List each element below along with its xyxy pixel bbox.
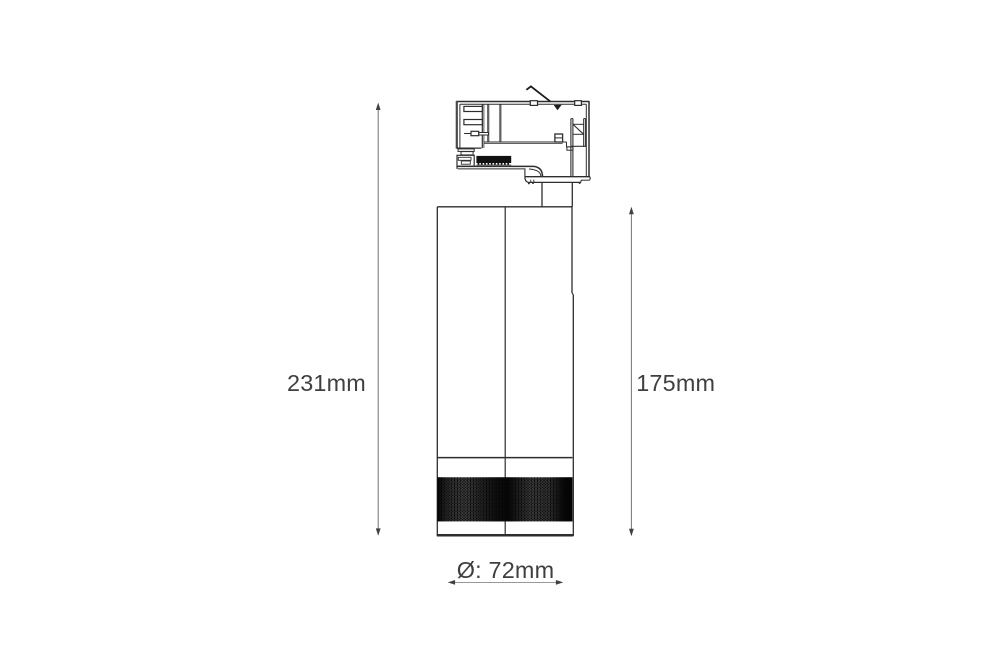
svg-text:231mm: 231mm [287,370,366,396]
svg-text:Ø: 72mm: Ø: 72mm [457,557,555,583]
svg-text:175mm: 175mm [636,370,715,396]
